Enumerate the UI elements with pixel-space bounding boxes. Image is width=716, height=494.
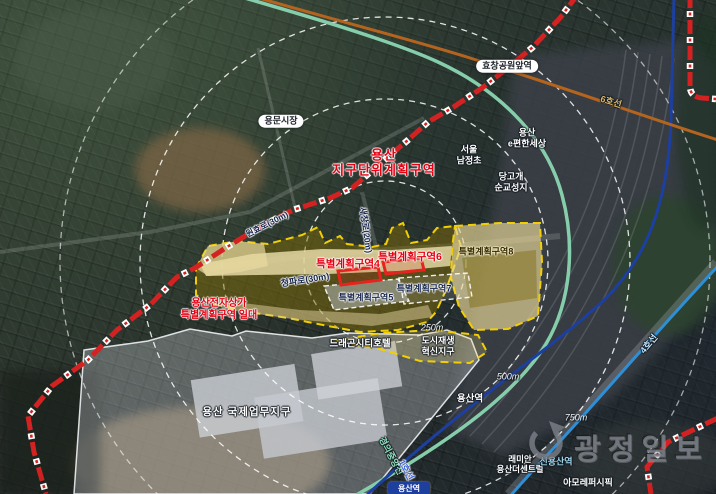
label-zone8: 특별계획구역8	[459, 247, 514, 258]
label-radius-750m: 750m	[565, 413, 588, 424]
label-dragon-city-hotel: 드래곤시티호텔	[329, 338, 390, 349]
label-seoul-namjeong: 서울 남정초	[457, 144, 482, 165]
label-radius-250m: 250m	[421, 323, 444, 334]
cutoff-station-badge: 용산역	[388, 482, 430, 494]
label-zone6: 특별계획구역6	[378, 251, 442, 263]
district-title: 용산 지구단위계획구역	[332, 148, 436, 179]
label-urban-regeneration: 도시재생 혁신지구	[421, 335, 454, 356]
label-hyochang-park-station: 효창공원앞역	[476, 60, 538, 73]
label-amorepacific: 아모레퍼시픽	[563, 478, 613, 489]
label-zone5: 특별계획구역5	[339, 293, 394, 304]
label-international-business-district: 용산 국제업무지구	[202, 406, 291, 418]
label-zone4: 특별계획구역4	[316, 258, 380, 270]
label-zone7: 특별계획구역7	[397, 284, 452, 295]
label-yongmun-market: 용문시장	[258, 115, 303, 128]
label-electronics-area: 용산전자상가 특별계획구역 일대	[181, 298, 257, 322]
satellite-map-canvas: 용문시장 효창공원앞역 용산 지구단위계획구역 용산 e편한세상 서울 남정초 …	[0, 0, 716, 494]
label-danggogae: 당고개 순교성지	[494, 171, 527, 192]
label-yongsan-epyeonhan: 용산 e편한세상	[508, 127, 546, 148]
map-overlay-svg	[0, 0, 716, 494]
label-yongsan-station: 용산역	[457, 393, 483, 404]
watermark-logo-icon	[524, 418, 568, 462]
label-radius-500m: 500m	[497, 372, 520, 383]
watermark-text: 광정일보	[574, 426, 709, 468]
